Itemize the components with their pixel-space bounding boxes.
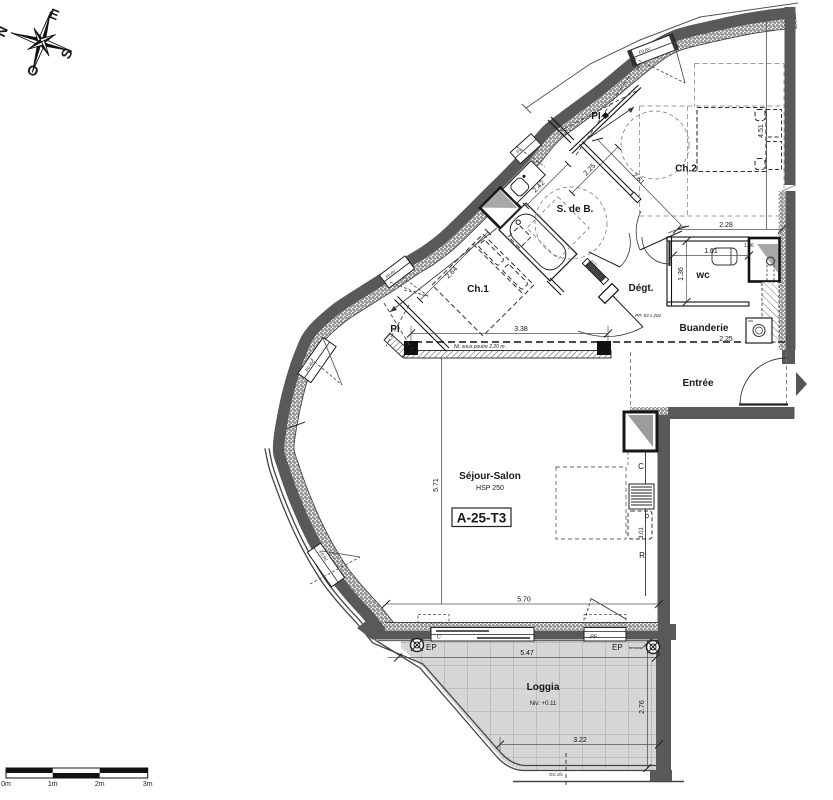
svg-text:1.06: 1.06 [744,243,754,249]
svg-text:C: C [437,635,441,641]
svg-text:Niv: +0.11: Niv: +0.11 [530,701,557,707]
svg-text:Nt. sous poutre 2.20 m.: Nt. sous poutre 2.20 m. [454,344,506,350]
svg-text:5.71: 5.71 [433,478,440,492]
svg-text:2.76: 2.76 [639,700,646,714]
svg-text:Séjour-Salon: Séjour-Salon [459,471,521,482]
svg-text:2m: 2m [95,781,105,788]
svg-text:PI: PI [390,324,400,335]
svg-text:EP: EP [612,643,623,652]
svg-text:Ch.1: Ch.1 [467,284,489,295]
svg-text:EP: EP [426,643,437,652]
svg-text:5.70: 5.70 [517,597,531,604]
svg-text:Entrée: Entrée [682,378,714,389]
svg-text:1m: 1m [48,781,58,788]
svg-text:Ch.2: Ch.2 [675,164,697,175]
svg-text:PI: PI [591,111,601,122]
svg-text:3m: 3m [143,781,153,788]
svg-text:3.01: 3.01 [639,527,645,539]
svg-text:A-25-T3: A-25-T3 [457,511,507,526]
svg-text:R: R [639,551,645,560]
svg-text:S. de B.: S. de B. [557,204,594,215]
svg-text:Dégt.: Dégt. [629,283,654,294]
svg-text:Loggia: Loggia [527,682,560,693]
svg-text:terrasse: terrasse [629,645,644,650]
svg-text:1.36: 1.36 [678,267,685,281]
svg-text:5.47: 5.47 [520,650,534,657]
svg-text:4.51: 4.51 [758,124,765,138]
svg-text:3.22: 3.22 [573,737,587,744]
svg-text:C: C [638,462,644,471]
svg-text:3.38: 3.38 [514,326,528,333]
svg-text:2.25: 2.25 [719,336,733,343]
svg-text:0m: 0m [1,781,11,788]
svg-text:PF: PF [590,635,598,641]
svg-text:PP: 83 x 204: PP: 83 x 204 [635,313,661,318]
svg-text:GC xfx: GC xfx [549,772,564,777]
svg-text:Buanderie: Buanderie [680,323,729,334]
svg-text:2.28: 2.28 [719,222,733,229]
svg-text:HSP 250: HSP 250 [476,485,504,492]
svg-text:wc: wc [695,270,710,281]
svg-text:1.61: 1.61 [704,248,718,255]
